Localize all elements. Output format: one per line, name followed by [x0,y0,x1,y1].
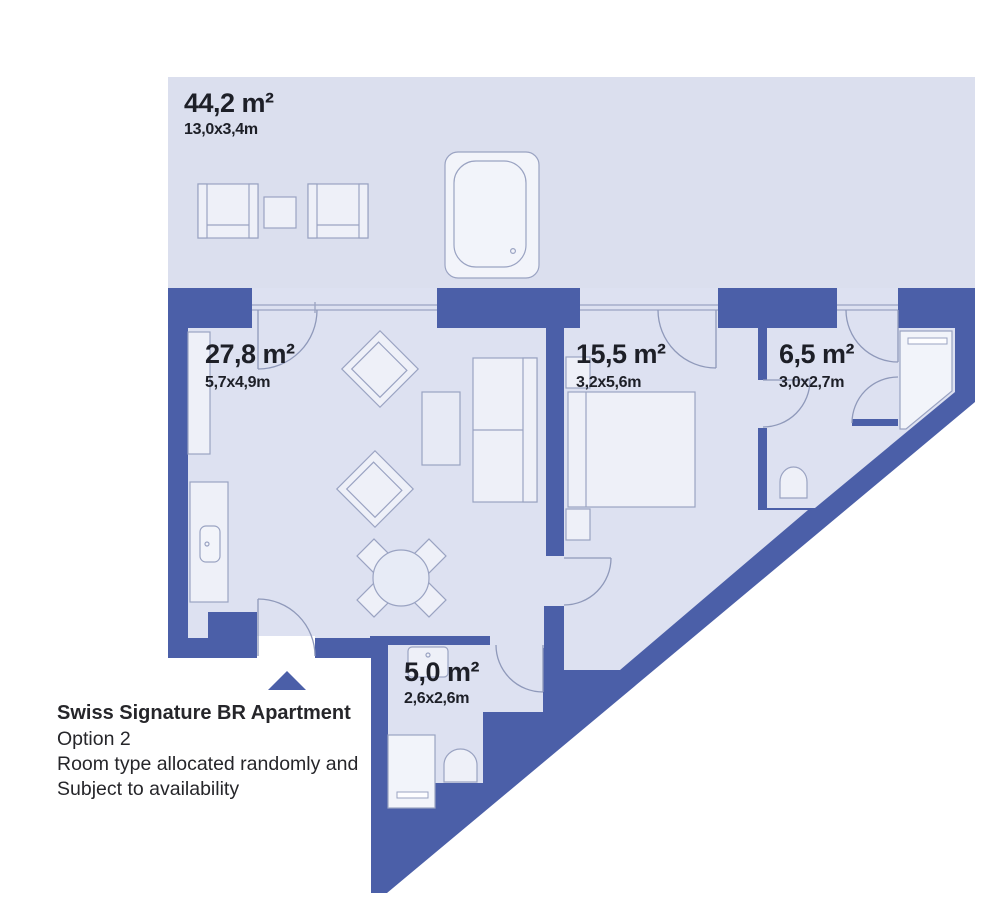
bedroom-dims-label: 3,2x5,6m [576,374,641,391]
note-line-2: Subject to availability [57,778,239,800]
coffee-table-icon [422,392,460,465]
terrace-floor [168,77,975,288]
bed-icon [568,392,695,507]
bathtub-icon [445,152,539,278]
floor-plan-page: 44,2 m² 13,0x3,4m 27,8 m² 5,7x4,9m 15,5 … [0,0,1000,915]
bathroom-area-label: 6,5 m² [779,339,855,369]
toilet-icon [444,749,477,782]
kitchen-counter-icon [190,482,228,602]
living-room-dims-label: 5,7x4,9m [205,374,270,391]
shower-icon [388,735,435,808]
bedroom-window [580,288,718,328]
sofa-icon [473,358,537,502]
bedroom-area-label: 15,5 m² [576,339,666,369]
nightstand-icon [566,509,590,540]
terrace-dims-label: 13,0x3,4m [184,121,258,138]
floor-plan: 44,2 m² 13,0x3,4m 27,8 m² 5,7x4,9m 15,5 … [0,0,1000,915]
terrace-side-table-icon [264,197,296,228]
shower-room-dims-label: 2,6x2,6m [404,690,469,707]
living-room-window [252,288,437,328]
bathroom-window [837,288,898,328]
terrace-chair-icon [198,184,258,238]
terrace-room [168,77,975,288]
note-line-1: Room type allocated randomly and [57,753,358,775]
toilet-icon [780,467,807,498]
terrace-chair-icon [308,184,368,238]
living-room-area-label: 27,8 m² [205,339,295,369]
entrance-opening [257,636,315,660]
shower-room-area-label: 5,0 m² [404,657,480,687]
terrace-area-label: 44,2 m² [184,88,274,118]
option-label: Option 2 [57,728,131,750]
bathroom-dims-label: 3,0x2,7m [779,374,844,391]
dining-table-icon [373,550,429,606]
apartment-title: Swiss Signature BR Apartment [57,702,351,724]
